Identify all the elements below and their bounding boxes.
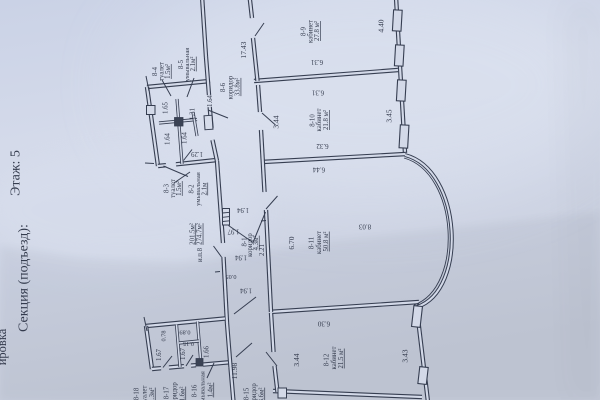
svg-text:274.7м²: 274.7м² — [197, 223, 204, 245]
svg-text:11.98: 11.98 — [230, 362, 239, 379]
svg-text:1.94: 1.94 — [234, 254, 246, 261]
svg-text:0.05: 0.05 — [225, 273, 236, 280]
svg-text:1.67: 1.67 — [156, 348, 163, 360]
svg-text:6.44: 6.44 — [312, 166, 325, 174]
svg-text:3.44: 3.44 — [272, 115, 281, 128]
svg-text:8-17: 8-17 — [163, 386, 170, 399]
svg-text:1.97: 1.97 — [227, 228, 239, 235]
svg-text:1.6м²: 1.6м² — [179, 387, 186, 400]
svg-text:8-11: 8-11 — [308, 237, 315, 249]
svg-text:8-15: 8-15 — [243, 387, 250, 400]
svg-text:1.5м²: 1.5м² — [176, 181, 183, 196]
svg-text:8-18: 8-18 — [133, 387, 140, 400]
svg-text:1.29: 1.29 — [190, 150, 202, 157]
svg-text:Секция (подъезд):: Секция (подъезд): — [16, 224, 31, 332]
svg-text:0.78: 0.78 — [161, 330, 168, 341]
svg-text:туалет: туалет — [141, 386, 148, 400]
svg-text:1.66: 1.66 — [203, 345, 210, 357]
svg-text:кабинет: кабинет — [331, 347, 338, 370]
svg-text:6.31: 6.31 — [310, 58, 323, 66]
svg-text:21.5 м²: 21.5 м² — [338, 349, 345, 369]
svg-text:3.6м²: 3.6м² — [258, 388, 265, 400]
svg-text:1.65: 1.65 — [162, 101, 169, 113]
svg-text:Этаж: 5: Этаж: 5 — [8, 150, 23, 196]
svg-text:8-16: 8-16 — [191, 384, 198, 397]
svg-text:8-6: 8-6 — [220, 82, 227, 92]
svg-text:1.67: 1.67 — [180, 347, 187, 359]
svg-text:4.40: 4.40 — [377, 19, 386, 32]
svg-text:27.8 м²: 27.8 м² — [314, 21, 321, 41]
svg-text:1.31: 1.31 — [189, 108, 196, 120]
svg-text:ировка: ировка — [0, 328, 9, 365]
svg-text:201.5м²: 201.5м² — [189, 223, 196, 245]
svg-text:8-12: 8-12 — [323, 353, 330, 366]
svg-text:коридор: коридор — [227, 75, 234, 99]
svg-text:1.4м²: 1.4м² — [207, 383, 214, 398]
svg-text:6.31: 6.31 — [311, 89, 324, 97]
svg-text:коридор: коридор — [251, 383, 258, 400]
svg-text:3.43: 3.43 — [401, 349, 410, 362]
svg-text:1.64: 1.64 — [181, 131, 188, 143]
svg-text:и.п.8: и.п.8 — [197, 247, 204, 262]
svg-text:3.44: 3.44 — [292, 353, 301, 366]
svg-text:3.45: 3.45 — [385, 109, 394, 122]
svg-text:17.43: 17.43 — [239, 41, 248, 58]
svg-text:1.64: 1.64 — [164, 132, 171, 144]
svg-text:1.94: 1.94 — [236, 206, 248, 213]
svg-text:0.89: 0.89 — [179, 328, 190, 335]
svg-text:6.70: 6.70 — [287, 236, 296, 249]
svg-text:кабинет: кабинет — [316, 231, 323, 254]
svg-text:6.30: 6.30 — [317, 320, 330, 328]
svg-text:21.8 м²: 21.8 м² — [323, 110, 330, 130]
svg-text:1.5м²: 1.5м² — [165, 64, 172, 79]
svg-text:2.1м: 2.1м — [201, 182, 208, 195]
svg-text:умывальная: умывальная — [199, 371, 206, 400]
svg-text:8.03: 8.03 — [358, 223, 371, 231]
svg-text:1.3м²: 1.3м² — [149, 388, 156, 400]
svg-text:6.32: 6.32 — [316, 142, 329, 150]
svg-text:33.8м²: 33.8м² — [235, 78, 242, 96]
svg-text:0.15: 0.15 — [183, 340, 194, 347]
svg-text:50.8 м²: 50.8 м² — [323, 232, 330, 252]
svg-text:коридор: коридор — [171, 382, 178, 400]
svg-text:2.1м²: 2.1м² — [190, 57, 197, 72]
svg-text:2.21: 2.21 — [259, 244, 266, 256]
svg-text:1.64: 1.64 — [207, 94, 214, 106]
svg-text:1.94: 1.94 — [239, 287, 251, 294]
